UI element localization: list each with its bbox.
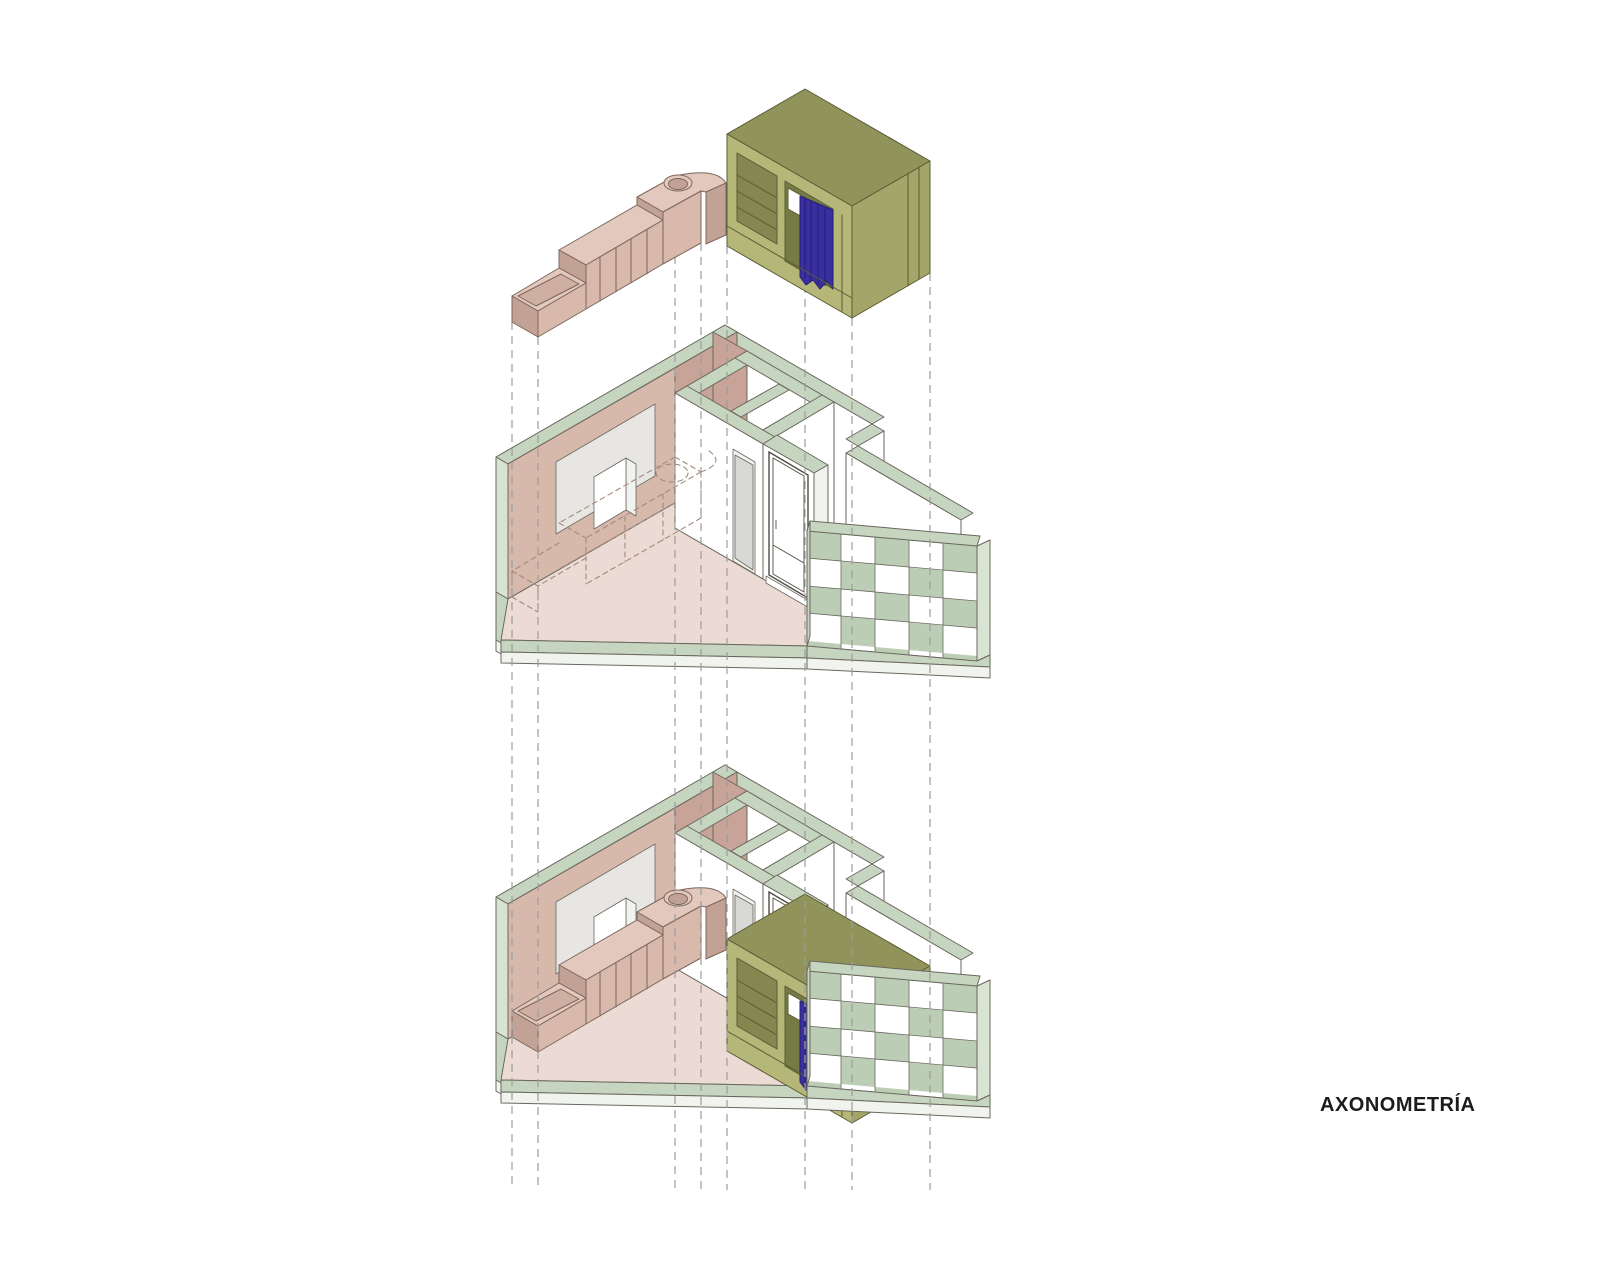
bedbox-exploded [727, 89, 930, 318]
level-room-shell [496, 325, 990, 678]
axonometria-label: AXONOMETRÍA [1320, 1093, 1476, 1116]
axonometric-diagram-page: AXONOMETRÍA [0, 0, 1600, 1280]
checkerboard-wall-middle [807, 521, 990, 678]
level-furniture-pieces [512, 89, 930, 337]
level-assembled-room [496, 765, 990, 1123]
cabinet-exploded [512, 173, 726, 337]
exploded-axonometric-drawing: AXONOMETRÍA [0, 0, 1600, 1280]
checkerboard-wall-bottom [807, 961, 990, 1118]
